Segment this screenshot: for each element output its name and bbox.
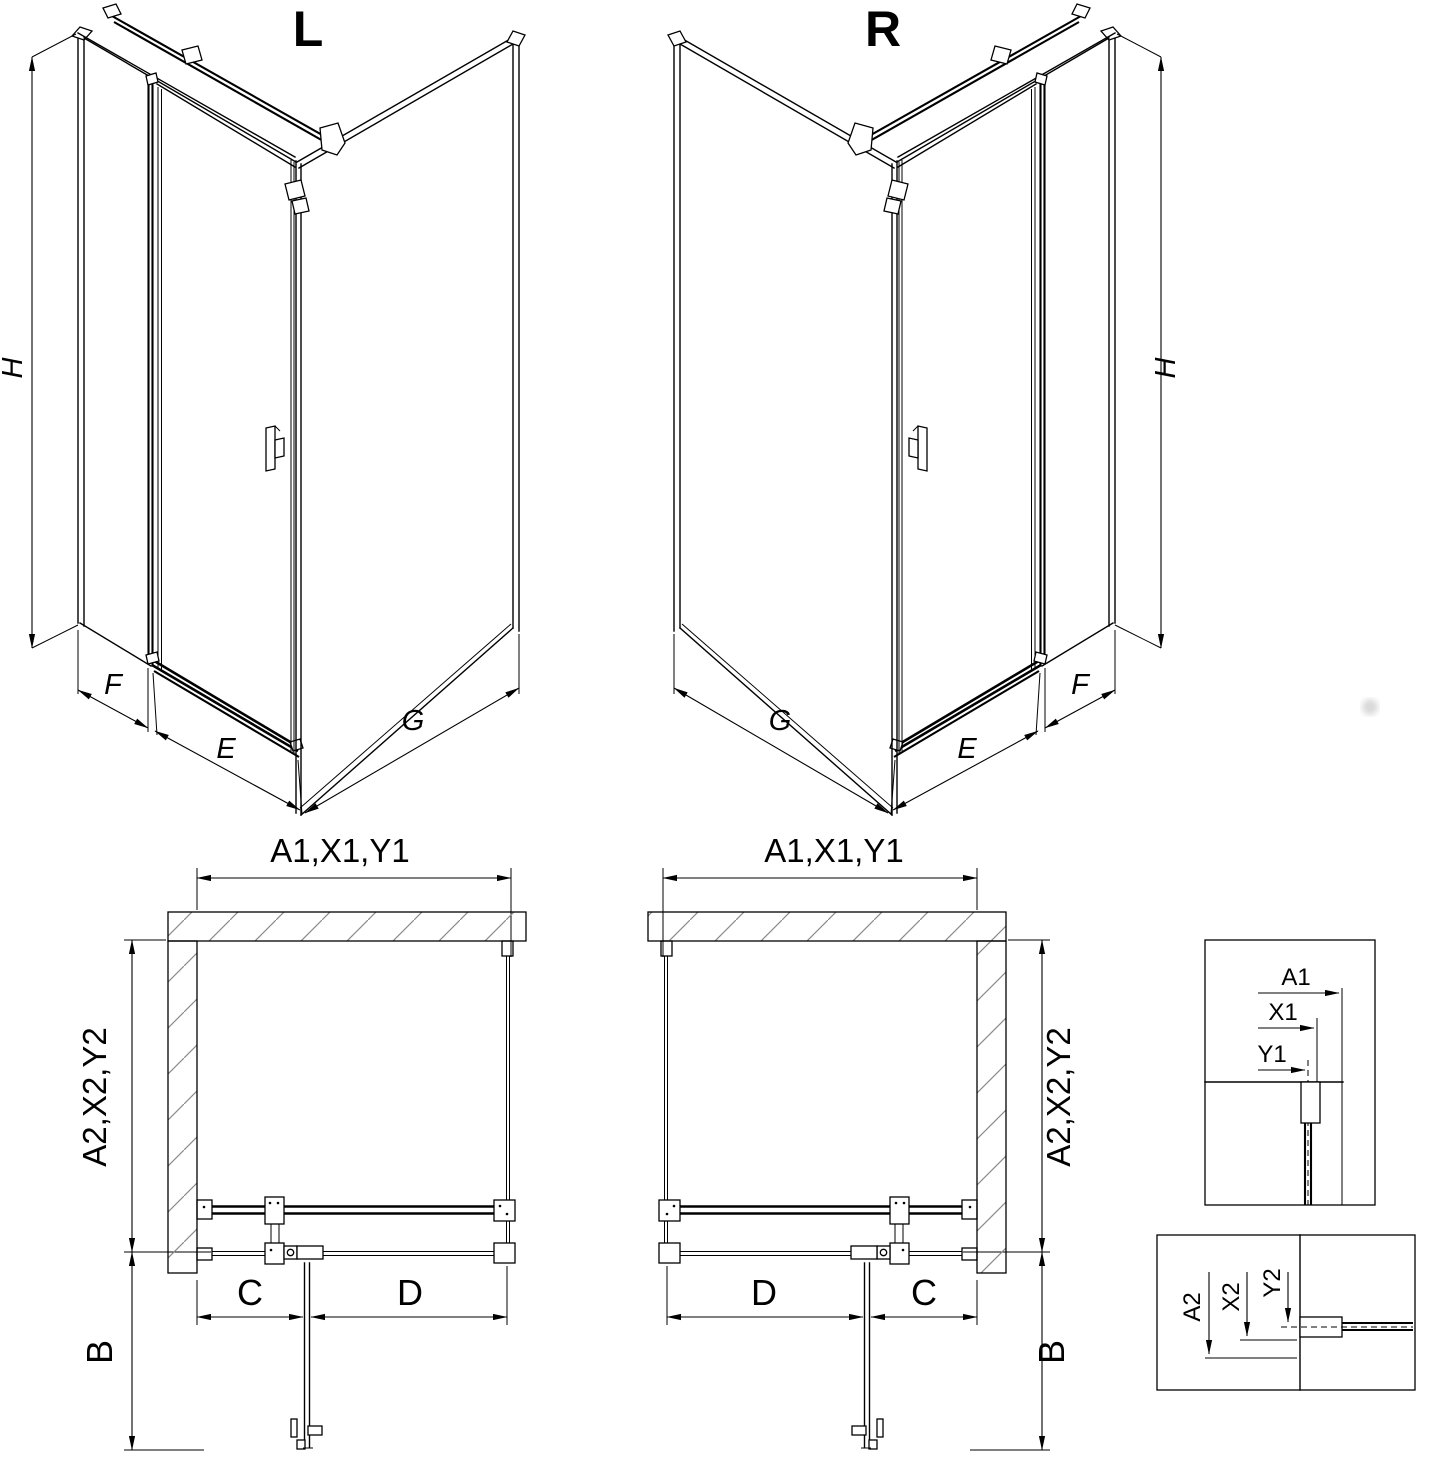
label-dim-side-left-plan: A2,X2,Y2: [76, 1027, 113, 1166]
label-return-g-right: G: [769, 705, 792, 737]
drawing-page: L H F E G R H F E G A1,X1,Y1 A2,X2,Y2 B …: [0, 0, 1430, 1460]
label-dim-b-left-plan: B: [79, 1340, 120, 1364]
wall-band-side-left-plan: [168, 941, 197, 1273]
label-return-g-left: G: [402, 705, 425, 737]
label-dim-top-left-plan: A1,X1,Y1: [270, 832, 409, 869]
label-variant-left: L: [293, 1, 324, 57]
label-dim-top-right-plan: A1,X1,Y1: [764, 832, 903, 869]
label-detail-y2: Y2: [1259, 1268, 1286, 1297]
label-dim-d-left-plan: D: [397, 1272, 423, 1313]
label-side-f-right: F: [1071, 669, 1091, 701]
wall-band-top-left-plan: [168, 912, 526, 941]
label-detail-x2: X2: [1218, 1282, 1245, 1311]
label-variant-right: R: [865, 1, 901, 57]
label-detail-a2: A2: [1179, 1292, 1206, 1321]
technical-drawing-canvas: L H F E G R H F E G A1,X1,Y1 A2,X2,Y2 B …: [0, 0, 1430, 1460]
label-door-e-left: E: [216, 733, 236, 765]
label-height-h-right: H: [1150, 357, 1182, 378]
label-dim-b-right-plan: B: [1031, 1340, 1072, 1364]
label-door-e-right: E: [957, 733, 977, 765]
faint-dot-artifact: [1362, 699, 1378, 715]
label-dim-d-right-plan: D: [751, 1272, 777, 1313]
label-detail-y1: Y1: [1257, 1041, 1286, 1068]
label-dim-side-right-plan: A2,X2,Y2: [1040, 1027, 1077, 1166]
label-detail-x1: X1: [1268, 999, 1297, 1026]
label-side-f-left: F: [104, 669, 124, 701]
label-height-h-left: H: [0, 357, 29, 378]
wall-band-side-right-plan: [977, 941, 1006, 1273]
label-dim-c-right-plan: C: [911, 1272, 937, 1313]
wall-band-top-right-plan: [648, 912, 1006, 941]
label-dim-c-left-plan: C: [237, 1272, 263, 1313]
label-detail-a1: A1: [1281, 964, 1310, 991]
